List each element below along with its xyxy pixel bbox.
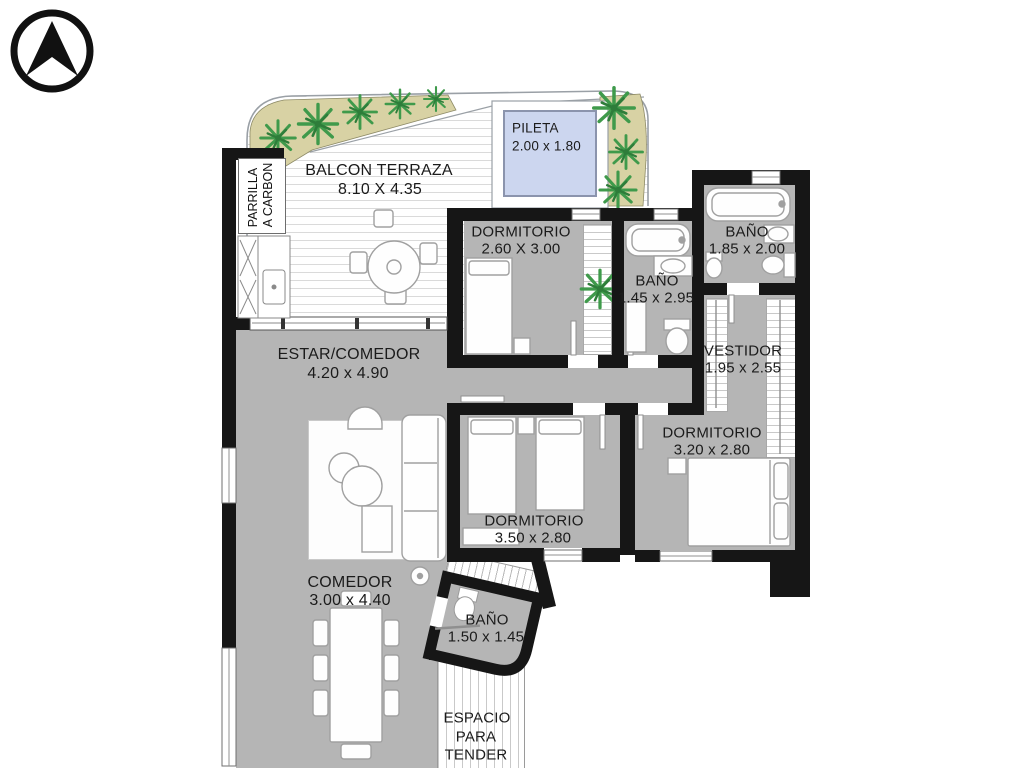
balcony-table xyxy=(350,210,437,304)
room-label-dormitorio3: DORMITORIO xyxy=(484,513,583,530)
floor-plan: PARRILLA A CARBON BALCON TERRAZA 8.10 X … xyxy=(0,0,1024,768)
room-label-tender-3: TENDER xyxy=(445,747,508,764)
room-dims-balcon: 8.10 X 4.35 xyxy=(338,181,422,199)
armchair xyxy=(348,407,382,429)
room-label-bano3: BAÑO xyxy=(465,612,508,629)
parrilla-line2: A CARBON xyxy=(261,163,276,228)
room-label-dormitorio1: DORMITORIO xyxy=(471,224,570,241)
bed-dormitorio1 xyxy=(466,258,530,354)
dining-set xyxy=(313,591,399,759)
sofa xyxy=(402,415,446,561)
room-dims-vestidor: 1.95 x 2.55 xyxy=(705,360,781,377)
floor-plan-graphics xyxy=(0,0,1024,768)
pool xyxy=(492,101,608,208)
room-dims-bano1: 1.45 x 2.95 xyxy=(618,290,694,307)
parrilla-line1: PARRILLA xyxy=(246,163,261,228)
room-dims-pileta: 2.00 x 1.80 xyxy=(512,139,581,154)
room-label-parrilla: PARRILLA A CARBON xyxy=(246,163,276,228)
side-table xyxy=(342,466,382,506)
bed-dormitorio2 xyxy=(668,458,790,546)
grill-cabinet xyxy=(238,236,290,318)
room-label-balcon: BALCON TERRAZA xyxy=(305,162,452,180)
room-label-tender-2: PARA xyxy=(456,729,497,746)
room-dims-dormitorio1: 2.60 X 3.00 xyxy=(482,241,561,258)
room-dims-dormitorio2: 3.20 x 2.80 xyxy=(674,442,750,459)
room-dims-bano3: 1.50 x 1.45 xyxy=(448,629,524,646)
room-label-dormitorio2: DORMITORIO xyxy=(662,425,761,442)
room-label-bano2: BAÑO xyxy=(725,224,768,241)
sliding-door xyxy=(250,317,447,330)
room-dims-comedor: 3.00 x 4.40 xyxy=(309,592,390,610)
room-label-tender-1: ESPACIO xyxy=(444,710,511,727)
furniture xyxy=(313,188,795,759)
room-dims-bano2: 1.85 x 2.00 xyxy=(709,241,785,258)
north-arrow-icon xyxy=(14,13,90,89)
coffee-table xyxy=(362,506,392,552)
room-dims-estar: 4.20 x 4.90 xyxy=(307,365,388,383)
room-label-bano1: BAÑO xyxy=(635,273,678,290)
room-label-comedor: COMEDOR xyxy=(308,574,393,592)
room-label-pileta: PILETA xyxy=(512,121,559,136)
room-dims-dormitorio3: 3.50 x 2.80 xyxy=(495,530,571,547)
room-label-vestidor: VESTIDOR xyxy=(704,343,782,360)
room-label-estar: ESTAR/COMEDOR xyxy=(278,346,421,364)
